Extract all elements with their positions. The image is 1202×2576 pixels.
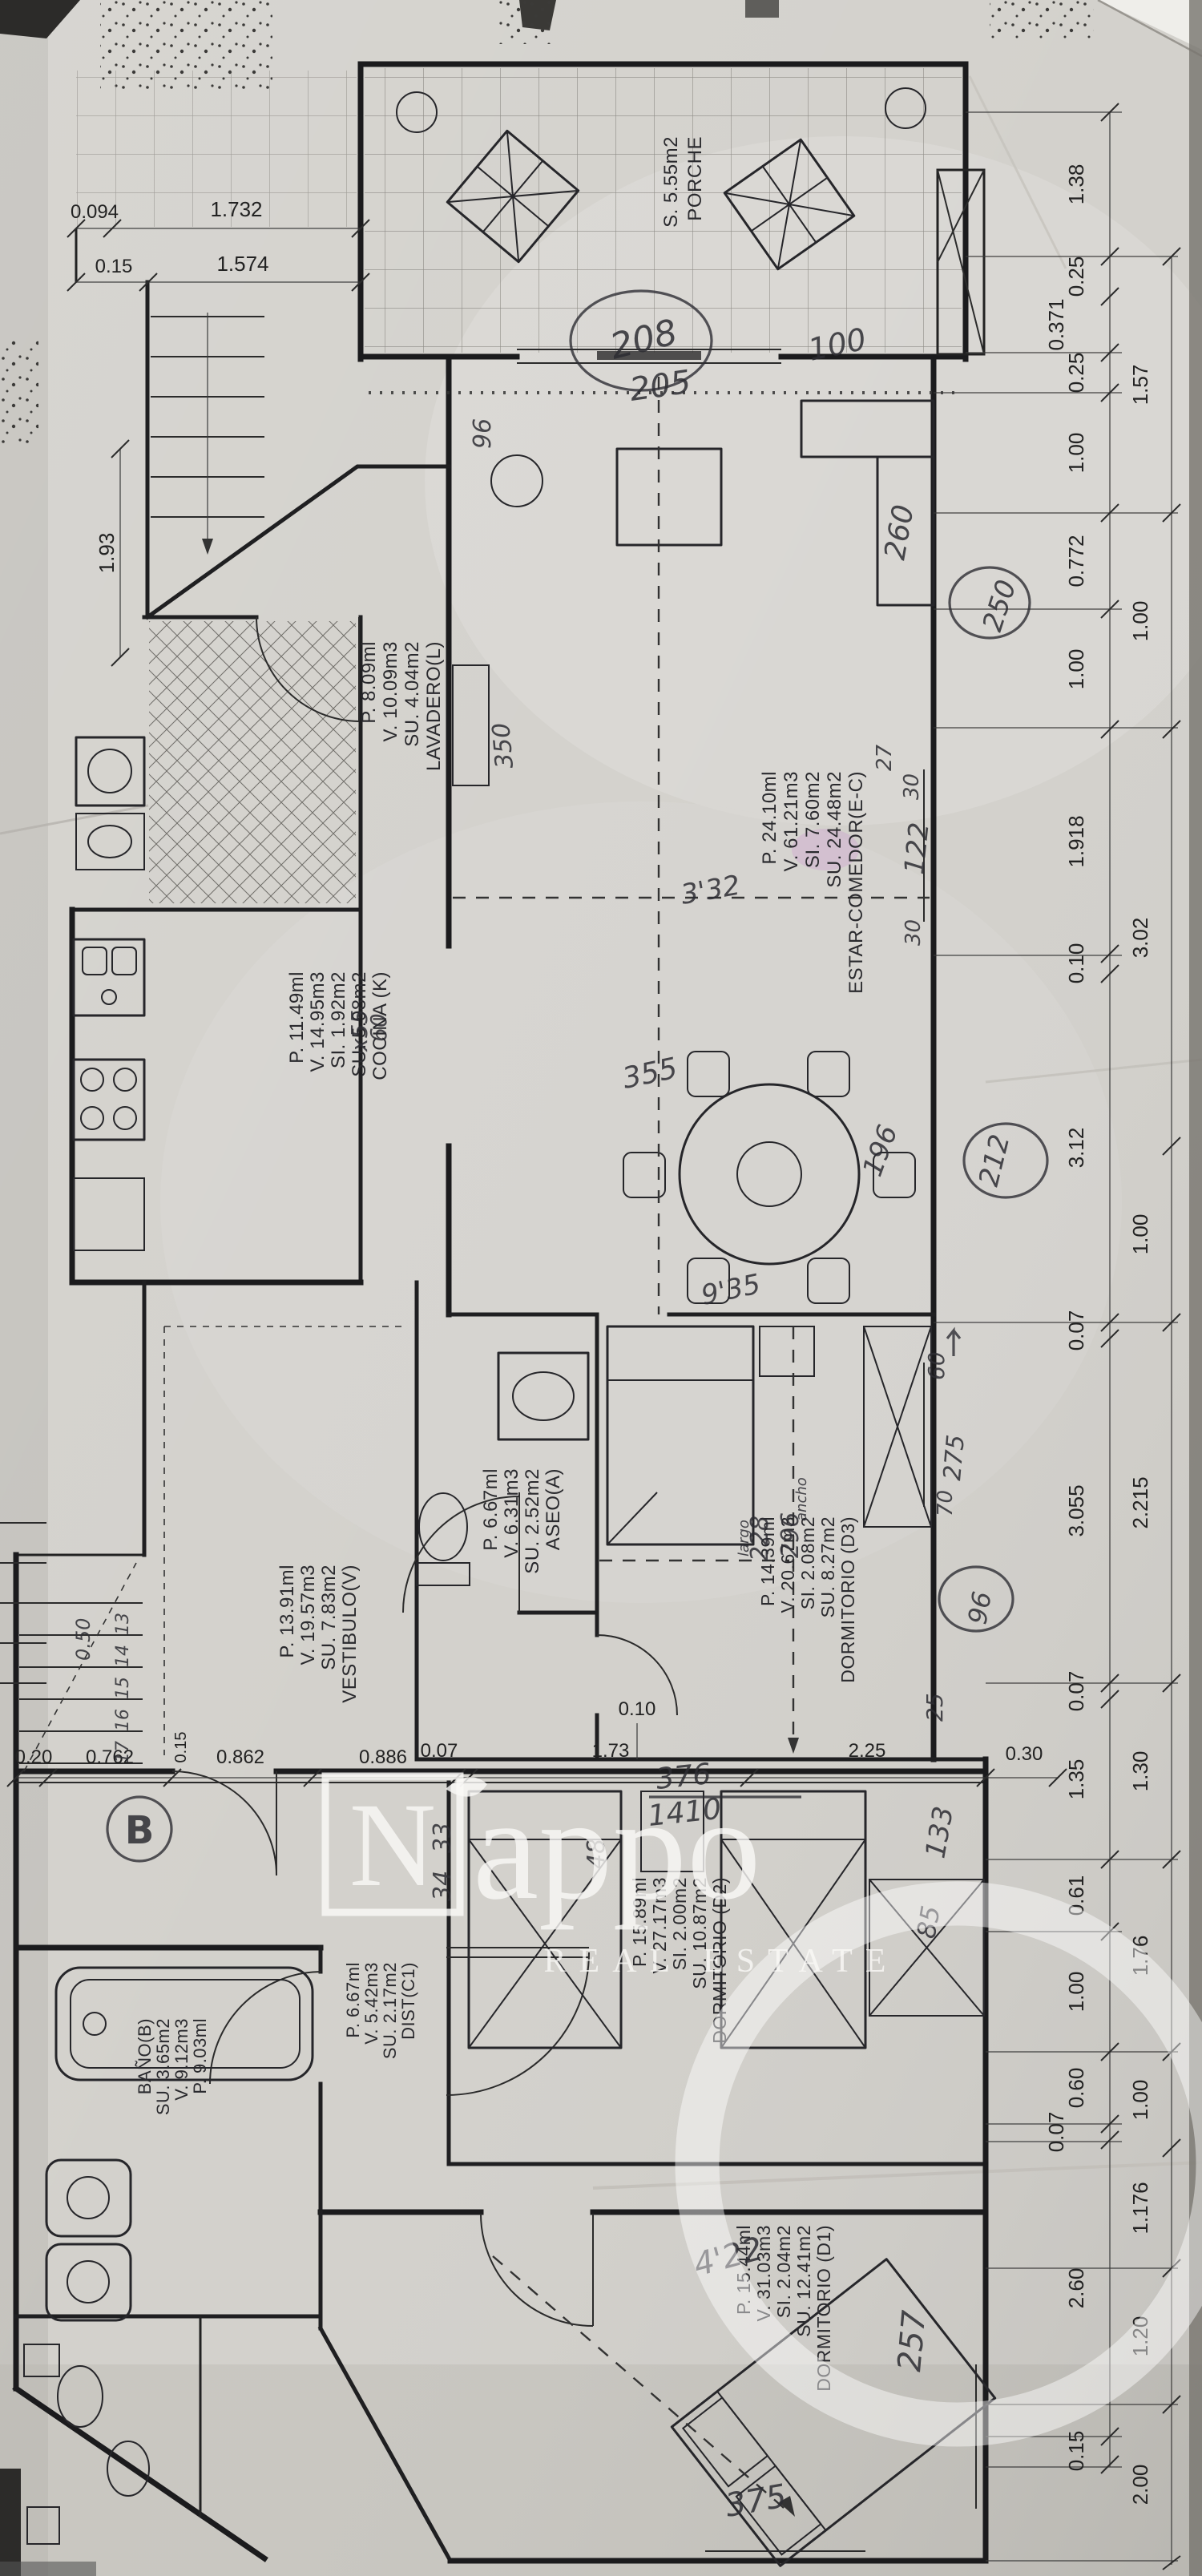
dim-label: 0.25 (1064, 353, 1088, 394)
dim-label: 1.73 (592, 1740, 630, 1762)
room-area-line: SI. 2.04m2 (773, 2225, 794, 2318)
room-name: DORMITORIO (D3) (837, 1516, 858, 1683)
hw-note: 96 (469, 418, 497, 449)
dim-label: 1.00 (1128, 2080, 1152, 2121)
room-area-line: SU. 2.52m2 (522, 1468, 543, 1574)
dim-label: 0.10 (1064, 943, 1088, 984)
dim-label: 0.07 (1064, 1310, 1088, 1351)
dim-label: 1.00 (1064, 1972, 1088, 2013)
room-area-line: S. 5.55m2 (660, 136, 682, 228)
hw-note: 0.50 (72, 1618, 95, 1661)
room-name: ASEO(A) (543, 1468, 564, 1550)
room-name: PORCHE (684, 136, 706, 221)
hw-note: 30 (900, 773, 924, 800)
dim-label: 1.574 (216, 252, 268, 276)
hw-note: largo (736, 1520, 752, 1557)
dim-label: 0.07 (1064, 1671, 1088, 1712)
room-area-line: V. 6.31m3 (501, 1468, 522, 1558)
hw-note: 30 (901, 919, 926, 946)
room-area-line: V. 19.57m3 (297, 1565, 319, 1666)
laundry-tile-floor (149, 621, 356, 903)
hw-note: 350 (487, 721, 519, 769)
dim-label: 0.20 (15, 1746, 53, 1768)
room-area-line: V. 14.95m3 (307, 971, 329, 1072)
floor-plan-canvas: 1.38 0.25 0.371 0.25 1.00 0.772 1.00 1.9… (0, 0, 1202, 2576)
dim-label: 0.10 (619, 1698, 656, 1720)
hw-note: 257 (891, 2308, 934, 2373)
room-area-line: P. 13.91ml (276, 1565, 298, 1658)
gravel-hatch-top-mid (497, 0, 553, 44)
dim-label: 0.07 (421, 1740, 458, 1762)
dim-label: 0.862 (216, 1746, 264, 1768)
dim-label: 1.57 (1128, 365, 1152, 406)
room-area-line: SU. 24.48m2 (824, 771, 845, 888)
hw-note: 60 (923, 1351, 950, 1380)
dim-label: 0.886 (359, 1746, 407, 1768)
dim-label: 1.00 (1128, 1214, 1152, 1255)
hw-note: 25 (922, 1693, 948, 1722)
watermark-brand: appo (473, 1766, 761, 1931)
hw-note: x55 (346, 1010, 373, 1052)
hw-note: 27 (873, 744, 897, 771)
gravel-hatch-top-right (990, 0, 1094, 38)
watermark-logo-letter: N (349, 1779, 436, 1912)
room-area-line: SU. 7.83m2 (318, 1565, 340, 1670)
room-area-line: SU. 2.17m2 (380, 1962, 400, 2059)
hw-note: 96 (962, 1589, 997, 1627)
room-area-line: P. 24.10ml (759, 771, 780, 865)
dim-label: 1.732 (210, 197, 262, 221)
dim-label: 0.07 (1044, 2112, 1068, 2153)
room-area-line: P. 6.67ml (343, 1962, 363, 2038)
hw-note: 275 (938, 1434, 970, 1482)
hw-note: 70 (934, 1490, 958, 1516)
dim-label: 0.094 (71, 201, 119, 223)
stair-number: 15 (113, 1677, 133, 1699)
room-name: ESTAR-COMEDOR(E-C) (845, 771, 867, 994)
room-area-line: V. 61.21m3 (780, 771, 802, 872)
room-area-line: V. 5.42m3 (361, 1962, 381, 2045)
dim-label: 0.772 (1064, 535, 1088, 587)
dim-label: 1.38 (1064, 164, 1088, 205)
dim-label: 0.15 (172, 1732, 190, 1763)
dim-label: 2.00 (1128, 2465, 1152, 2505)
dim-label: 1.93 (95, 533, 119, 574)
room-area-line: P. 8.09ml (358, 641, 380, 724)
room-area-line: SU. 12.41m2 (793, 2225, 814, 2337)
room-area-line: SU. 8.27m2 (817, 1516, 838, 1617)
hw-note: 122 (898, 821, 936, 876)
dim-label: 0.25 (1064, 256, 1088, 297)
room-area-line: SI. 7.60m2 (802, 771, 824, 868)
dim-label: 1.00 (1064, 433, 1088, 474)
stair-number: 13 (113, 1613, 133, 1635)
hw-note: 296 (776, 1512, 805, 1558)
dim-label: 1.30 (1128, 1751, 1152, 1792)
room-name: BAÑO(B) (135, 2018, 155, 2094)
room-name: VESTIBULO(V) (339, 1565, 361, 1703)
watermark-tagline: REAL ESTATE (544, 1943, 899, 1980)
dim-label: 0.30 (1006, 1743, 1043, 1765)
dim-label: 2.60 (1064, 2268, 1088, 2309)
room-area-line: V. 10.09m3 (380, 641, 401, 742)
scanned-floorplan-page: 1.38 0.25 0.371 0.25 1.00 0.772 1.00 1.9… (0, 0, 1202, 2576)
stair-number: 16 (113, 1709, 133, 1731)
gravel-hatch-left (0, 341, 38, 445)
dim-label: 1.35 (1064, 1759, 1088, 1800)
room-name: DIST(C1) (398, 1962, 418, 2040)
stair-number: 17 (113, 1741, 133, 1763)
stair-number: 14 (113, 1645, 133, 1667)
dim-label: 1.918 (1064, 815, 1088, 867)
room-area-line: P. 9.03ml (190, 2018, 210, 2094)
room-area-line: SU. 4.04m2 (401, 641, 423, 747)
dim-label: 3.12 (1064, 1128, 1088, 1169)
room-area-line: P. 6.67ml (480, 1468, 502, 1551)
room-area-line: P. 11.49ml (286, 971, 308, 1064)
dim-label: 0.371 (1044, 298, 1068, 350)
room-name: LAVADERO(L) (423, 641, 445, 771)
dim-label: 0.60 (1064, 2068, 1088, 2109)
paper-texture (0, 0, 1202, 2576)
room-area-line: SU. 3.65m2 (153, 2018, 173, 2115)
dim-label: 2.215 (1128, 1476, 1152, 1528)
dim-label: 3.055 (1064, 1484, 1088, 1536)
block-b-letter: B (125, 1808, 155, 1853)
dim-label: 0.15 (95, 256, 133, 277)
dim-label: 1.00 (1128, 601, 1152, 642)
dim-label: 1.00 (1064, 649, 1088, 690)
dim-label: 2.25 (849, 1740, 886, 1762)
dim-label: 3.02 (1128, 918, 1152, 959)
room-area-line: V. 9.12m3 (171, 2018, 192, 2101)
dim-label: 1.176 (1128, 2182, 1152, 2234)
dim-label: 0.15 (1064, 2431, 1088, 2472)
